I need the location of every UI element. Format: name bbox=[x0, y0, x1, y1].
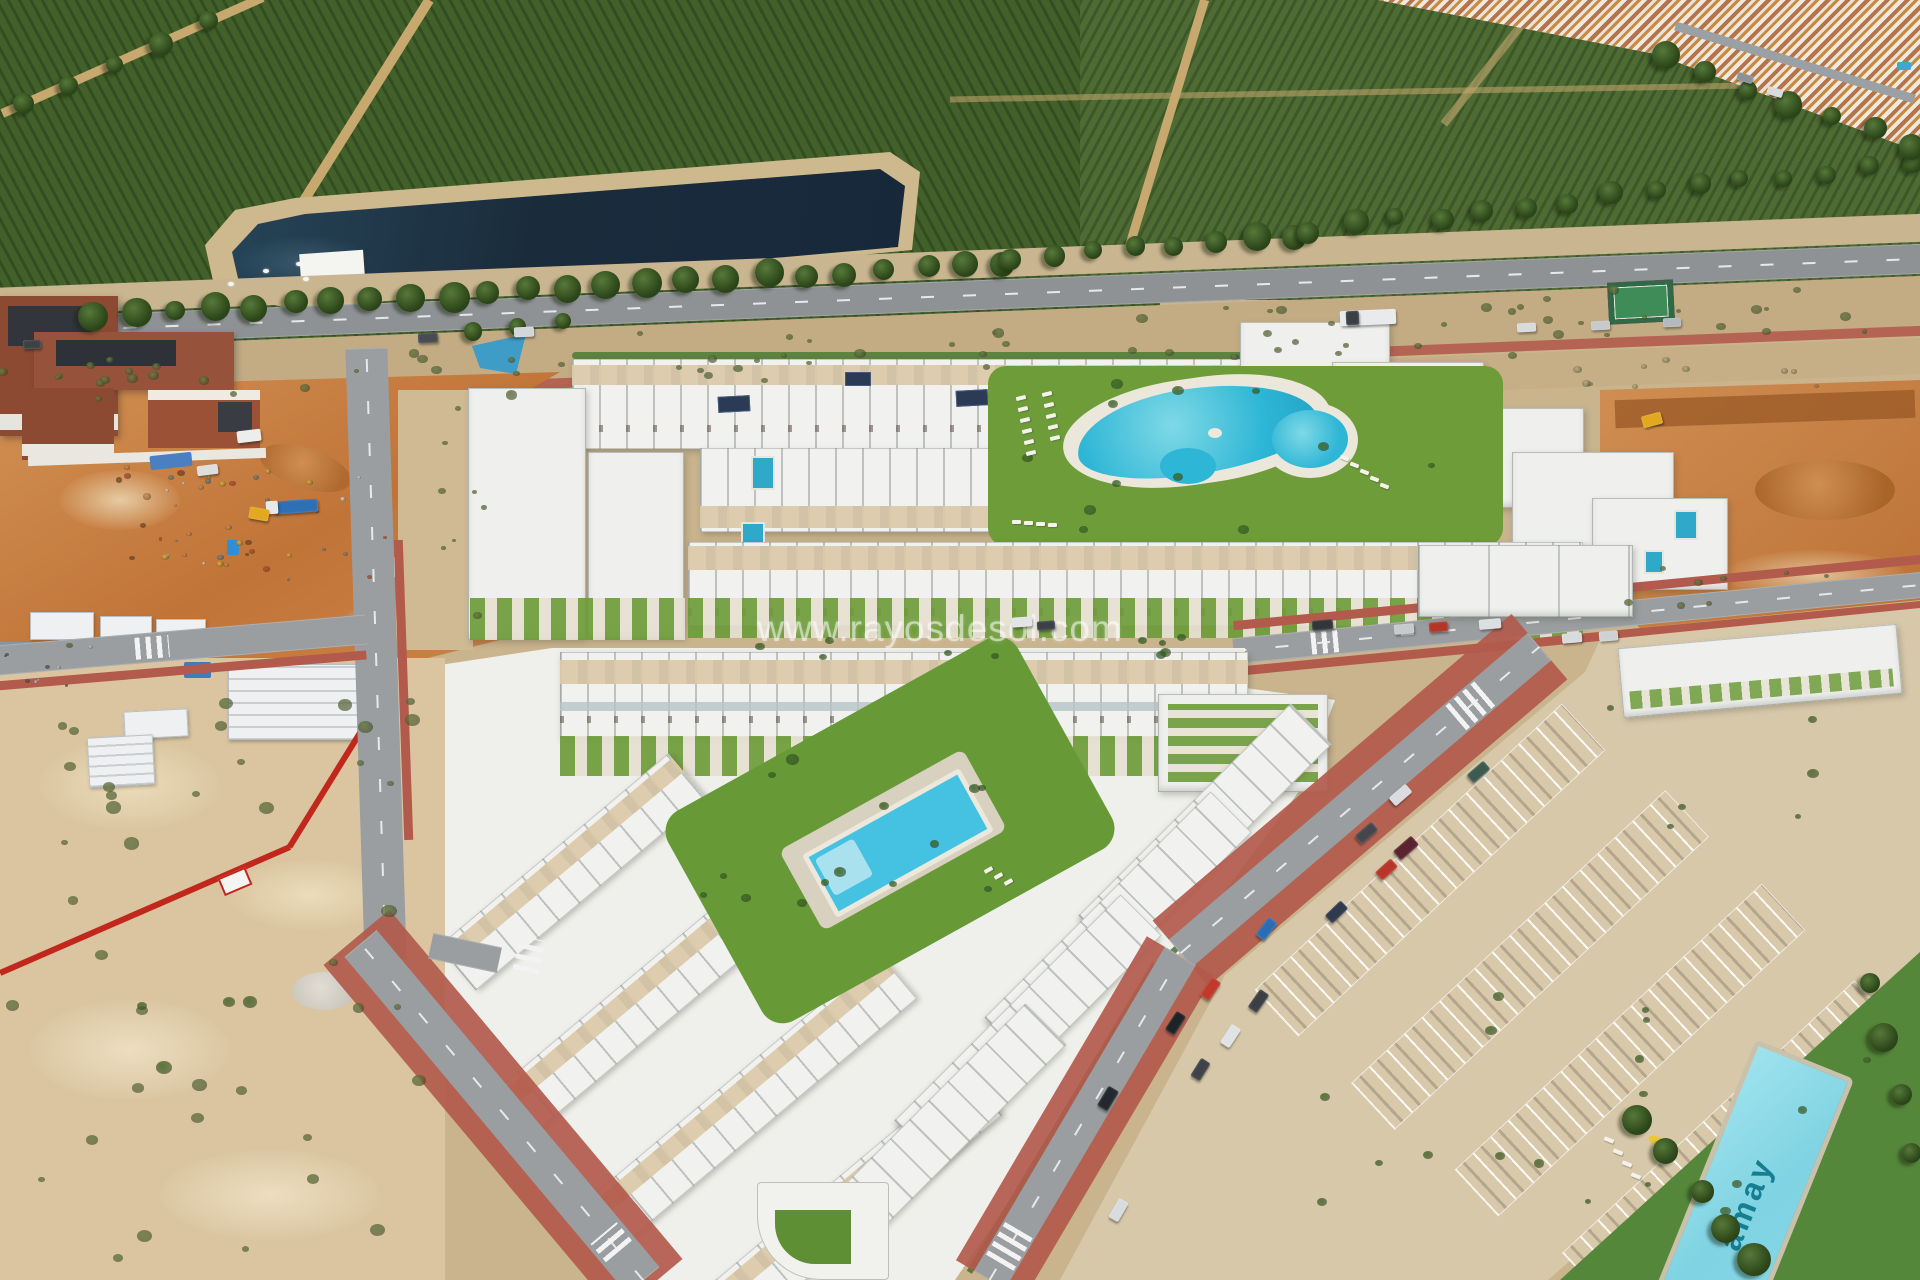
palm-tree bbox=[1652, 41, 1680, 69]
palm-tree bbox=[1558, 194, 1578, 214]
crosswalk bbox=[1310, 630, 1342, 655]
palm-tree bbox=[396, 284, 425, 313]
scrub-bush bbox=[132, 1083, 144, 1093]
scrub-bush bbox=[1642, 1007, 1650, 1013]
scrub-bush bbox=[409, 349, 420, 357]
scrub-bush bbox=[65, 684, 68, 687]
scrub-bush bbox=[1173, 473, 1183, 481]
scrub-bush bbox=[1553, 330, 1564, 339]
scrub-bush bbox=[558, 362, 565, 367]
scrub-bush bbox=[124, 473, 131, 479]
scrub-bush bbox=[106, 801, 121, 813]
scrub-bush bbox=[1428, 463, 1435, 469]
scrub-bush bbox=[781, 353, 788, 358]
scrub-bush bbox=[124, 837, 140, 850]
palm-tree bbox=[952, 251, 978, 277]
scrub-bush bbox=[300, 384, 310, 392]
palm-tree bbox=[149, 32, 173, 56]
palm-tree bbox=[317, 287, 343, 313]
car bbox=[1516, 322, 1535, 332]
palm-tree bbox=[1599, 181, 1622, 204]
sun-lounger bbox=[1036, 522, 1045, 526]
scrub-bush bbox=[161, 554, 168, 560]
palm-tree bbox=[357, 287, 382, 312]
scrub-bush bbox=[854, 349, 866, 359]
palm-tree bbox=[1471, 200, 1493, 222]
palm-tree bbox=[554, 275, 581, 302]
palm-tree bbox=[13, 93, 34, 114]
palm-tree bbox=[1344, 209, 1369, 234]
palm-tree bbox=[1387, 208, 1404, 225]
scrub-bush bbox=[242, 1246, 250, 1252]
scrub-bush bbox=[761, 378, 768, 383]
scrub-bush bbox=[338, 699, 353, 711]
scrub-bush bbox=[637, 331, 643, 336]
scrub-bush bbox=[700, 892, 707, 898]
scrub-bush bbox=[1795, 814, 1801, 819]
scrub-bush bbox=[786, 754, 799, 765]
van bbox=[1012, 616, 1033, 627]
private-pool bbox=[1676, 512, 1696, 538]
sand-strip bbox=[398, 390, 473, 650]
scrub-bush bbox=[1791, 369, 1797, 374]
scrub-bush bbox=[1781, 368, 1788, 374]
scrub-bush bbox=[192, 1079, 206, 1091]
scrub-bush bbox=[191, 1113, 204, 1123]
scrub-bush bbox=[329, 959, 338, 966]
palm-tree bbox=[516, 276, 540, 300]
scrub-bush bbox=[1587, 382, 1593, 386]
scrub-bush bbox=[156, 1061, 172, 1074]
car bbox=[1663, 317, 1681, 327]
scrub-bush bbox=[387, 781, 394, 786]
swan bbox=[228, 282, 234, 286]
scrub-bush bbox=[1585, 1199, 1592, 1204]
scrub-bush bbox=[768, 772, 776, 778]
palm-tree bbox=[755, 258, 784, 287]
scrub-bush bbox=[506, 390, 518, 400]
scrub-bush bbox=[95, 950, 108, 961]
scrub-bush bbox=[223, 997, 235, 1006]
scrub-bush bbox=[1676, 309, 1681, 313]
scrub-bush bbox=[116, 477, 123, 482]
palm-tree bbox=[1731, 170, 1748, 187]
car bbox=[514, 327, 534, 338]
villas-row bbox=[1418, 545, 1633, 617]
scrub-bush bbox=[1084, 505, 1096, 515]
corner-garden bbox=[775, 1210, 851, 1264]
palm-tree bbox=[1432, 209, 1453, 230]
scrub-bush bbox=[1578, 321, 1584, 326]
car bbox=[418, 333, 438, 344]
scrub-bush bbox=[1643, 1017, 1650, 1023]
scrub-bush bbox=[61, 840, 68, 845]
scrub-bush bbox=[1481, 303, 1492, 312]
dirt-mound bbox=[1755, 460, 1895, 520]
solar-panel bbox=[718, 395, 751, 413]
palm-tree bbox=[632, 268, 662, 298]
scrub-bush bbox=[177, 470, 185, 476]
scrub-bush bbox=[417, 355, 428, 363]
scrub-bush bbox=[286, 553, 292, 558]
scrub-bush bbox=[1508, 308, 1516, 315]
scrub-bush bbox=[198, 485, 204, 490]
scrub-bush bbox=[1635, 1055, 1644, 1062]
scrub-bush bbox=[704, 372, 713, 379]
scrub-bush bbox=[6, 1000, 19, 1011]
scrub-bush bbox=[125, 368, 133, 375]
scrub-bush bbox=[508, 357, 516, 363]
palm-tree bbox=[591, 271, 619, 299]
scrub-bush bbox=[1720, 576, 1727, 581]
palm-tree bbox=[201, 292, 230, 321]
dark-roof bbox=[56, 340, 176, 366]
site-cabin bbox=[30, 612, 94, 640]
scrub-bush bbox=[834, 867, 846, 877]
scrub-bush bbox=[58, 722, 67, 730]
palm-tree bbox=[1899, 134, 1920, 160]
scrub-bush bbox=[236, 1086, 247, 1095]
scrub-bush bbox=[103, 782, 115, 792]
palm-tree bbox=[1869, 1023, 1898, 1052]
scrub-bush bbox=[249, 549, 255, 554]
scrub-bush bbox=[1793, 287, 1801, 294]
swan bbox=[263, 269, 269, 273]
palm-tree bbox=[1084, 241, 1102, 259]
palm-tree bbox=[795, 265, 818, 288]
scrub-bush bbox=[215, 721, 227, 731]
swan bbox=[296, 262, 302, 266]
roof-terraces bbox=[560, 660, 1248, 684]
scrub-bush bbox=[1678, 804, 1686, 810]
palm-tree bbox=[464, 322, 483, 341]
solar-panel bbox=[845, 372, 871, 386]
sun-lounger bbox=[1024, 521, 1033, 525]
crosswalk bbox=[134, 635, 170, 660]
car bbox=[1598, 630, 1618, 642]
scrub-bush bbox=[1677, 602, 1685, 609]
scrub-bush bbox=[229, 481, 236, 486]
car bbox=[1428, 621, 1448, 633]
scrub-bush bbox=[205, 478, 212, 484]
scrub-bush bbox=[1604, 333, 1610, 338]
palm-tree bbox=[1653, 1138, 1678, 1163]
scrub-bush bbox=[431, 366, 442, 375]
palm-tree bbox=[672, 266, 699, 293]
palm-tree bbox=[1860, 973, 1880, 993]
scrub-bush bbox=[1276, 306, 1286, 314]
palm-tree bbox=[1000, 249, 1020, 269]
hedge bbox=[572, 352, 1312, 359]
scrub-bush bbox=[481, 505, 487, 510]
scrub-bush bbox=[979, 351, 987, 357]
scrub-bush bbox=[733, 365, 742, 372]
scrub-bush bbox=[1639, 1091, 1647, 1098]
scrub-bush bbox=[1375, 1160, 1383, 1166]
scrub-bush bbox=[1423, 1151, 1433, 1159]
scrub-bush bbox=[1274, 347, 1282, 353]
palm-tree bbox=[873, 259, 894, 280]
scrub-bush bbox=[381, 905, 397, 918]
garden-strip bbox=[470, 598, 685, 640]
scrub-bush bbox=[1784, 571, 1789, 575]
palm-tree bbox=[59, 76, 78, 95]
dark-roof bbox=[218, 402, 252, 432]
tennis-court-surface bbox=[1613, 285, 1669, 320]
palm-tree bbox=[78, 302, 108, 332]
palm-tree bbox=[1711, 1214, 1740, 1243]
truck-cab bbox=[1345, 311, 1359, 326]
lagoon-pool-lobe bbox=[1272, 410, 1348, 468]
palm-tree bbox=[1902, 1143, 1920, 1162]
scrub-bush bbox=[1267, 309, 1273, 314]
scrub-bush bbox=[192, 791, 200, 797]
scrub-bush bbox=[825, 637, 833, 644]
scrub-bush bbox=[148, 371, 159, 380]
palm-tree bbox=[1622, 1105, 1652, 1135]
scrub-bush bbox=[949, 342, 955, 347]
scrub-bush bbox=[1517, 304, 1524, 310]
palm-tree bbox=[165, 301, 185, 321]
scrub-bush bbox=[441, 546, 445, 550]
palm-tree bbox=[1243, 222, 1271, 250]
scrub-bush bbox=[182, 553, 187, 557]
car bbox=[1311, 619, 1333, 631]
palm-tree bbox=[1739, 81, 1758, 100]
scrub-bush bbox=[159, 537, 163, 540]
scrub-bush bbox=[4, 655, 7, 658]
pale-sand bbox=[160, 1150, 380, 1240]
palm-tree bbox=[1691, 1180, 1713, 1202]
car bbox=[1037, 620, 1056, 630]
palm-tree bbox=[1864, 117, 1887, 140]
scrub-bush bbox=[1112, 480, 1121, 487]
scrub-bush bbox=[1608, 285, 1620, 295]
scrub-bush bbox=[930, 840, 939, 847]
car bbox=[1590, 320, 1609, 330]
scrub-bush bbox=[1642, 315, 1647, 319]
scrub-bush bbox=[1079, 526, 1087, 533]
palm-tree bbox=[122, 298, 152, 328]
watermark: www.rayosdesol.com bbox=[700, 608, 1180, 650]
car bbox=[23, 339, 41, 349]
scrub-bush bbox=[237, 759, 244, 765]
scrub-bush bbox=[969, 784, 980, 793]
scrub-bush bbox=[1493, 992, 1504, 1001]
crosswalk bbox=[591, 1222, 632, 1262]
scrub-bush bbox=[1111, 379, 1123, 388]
scrub-bush bbox=[1751, 305, 1762, 314]
scrub-bush bbox=[230, 391, 237, 397]
sun-lounger bbox=[1048, 523, 1057, 527]
scrub-bush bbox=[1318, 442, 1329, 451]
scrub-bush bbox=[1177, 634, 1186, 641]
scrub-bush bbox=[199, 376, 209, 384]
scrub-bush bbox=[1632, 384, 1638, 389]
scrub-bush bbox=[1808, 716, 1817, 723]
scrub-bush bbox=[708, 355, 718, 363]
scrub-bush bbox=[140, 523, 146, 528]
palm-tree bbox=[1737, 1243, 1770, 1276]
scrub-bush bbox=[720, 873, 728, 879]
scrub-bush bbox=[186, 532, 191, 536]
scrub-bush bbox=[1762, 328, 1771, 335]
scrub-bush bbox=[224, 563, 229, 567]
scrub-bush bbox=[1230, 354, 1238, 361]
scrub-bush bbox=[353, 1003, 365, 1012]
scrub-bush bbox=[236, 540, 243, 546]
scrub-bush bbox=[66, 643, 73, 648]
white-wall bbox=[148, 390, 260, 400]
lagoon-pool-lobe bbox=[1160, 448, 1216, 484]
scrub-bush bbox=[253, 475, 259, 480]
car bbox=[1562, 632, 1583, 644]
scrub-bush bbox=[56, 666, 60, 670]
road-centerline bbox=[365, 348, 386, 960]
scrub-bush bbox=[174, 504, 178, 507]
palm-tree bbox=[476, 281, 498, 303]
scrub-bush bbox=[306, 480, 313, 486]
scrub-bush bbox=[1720, 1207, 1730, 1215]
scrub-bush bbox=[243, 996, 258, 1008]
scrub-bush bbox=[303, 1134, 312, 1141]
palm-tree bbox=[1126, 236, 1145, 255]
private-pool bbox=[753, 458, 773, 488]
scrub-bush bbox=[983, 364, 991, 370]
van bbox=[1479, 618, 1502, 630]
pool-island bbox=[1208, 428, 1222, 438]
scrub-bush bbox=[1543, 316, 1553, 324]
scrub-bush bbox=[143, 493, 151, 499]
scrub-bush bbox=[1807, 769, 1818, 778]
scrub-bush bbox=[357, 760, 365, 766]
scrub-bush bbox=[1732, 1180, 1742, 1188]
palm-tree bbox=[1297, 222, 1319, 244]
scrub-bush bbox=[405, 714, 420, 726]
palm-tree bbox=[555, 313, 571, 329]
scrub-bush bbox=[755, 643, 765, 651]
car bbox=[1394, 623, 1415, 635]
scrub-bush bbox=[741, 894, 751, 902]
scrub-bush bbox=[1863, 1057, 1871, 1063]
scrub-bush bbox=[1706, 601, 1712, 606]
scrub-bush bbox=[217, 555, 224, 560]
scrub-bush bbox=[1798, 1106, 1808, 1114]
scrub-bush bbox=[1252, 388, 1259, 394]
scrub-bush bbox=[1343, 343, 1349, 348]
scrub-bush bbox=[322, 548, 325, 551]
palm-tree bbox=[1691, 173, 1712, 194]
scrub-bush bbox=[797, 899, 807, 907]
scrub-bush bbox=[34, 680, 39, 684]
scrub-bush bbox=[86, 1135, 98, 1145]
swan bbox=[303, 277, 309, 281]
scrub-bush bbox=[1441, 322, 1447, 327]
scrub-bush bbox=[88, 645, 93, 649]
scrub-bush bbox=[1136, 314, 1147, 323]
scrub-bush bbox=[1862, 329, 1868, 334]
scrub-bush bbox=[1238, 525, 1249, 534]
dump-trailer bbox=[274, 498, 319, 514]
village-pool bbox=[1897, 62, 1911, 70]
scrub-bush bbox=[473, 612, 481, 619]
scrub-bush bbox=[513, 371, 520, 376]
scrub-bush bbox=[1335, 351, 1342, 357]
solar-panel bbox=[956, 389, 989, 407]
scrub-bush bbox=[993, 328, 1005, 338]
palm-tree bbox=[1648, 181, 1666, 199]
scrub-bush bbox=[1414, 343, 1422, 349]
scrub-bush bbox=[1543, 296, 1551, 302]
palm-tree bbox=[1891, 1084, 1912, 1105]
scrub-bush bbox=[124, 465, 129, 469]
portable-building bbox=[87, 734, 156, 787]
scrub-bush bbox=[991, 653, 999, 659]
complex1-mid-block bbox=[700, 448, 1005, 532]
aerial-photo: amay www.rayosdesol.com bbox=[0, 0, 1920, 1280]
sun-lounger bbox=[1012, 520, 1021, 524]
scrub-bush bbox=[754, 358, 760, 363]
palm-tree bbox=[284, 290, 307, 313]
scrub-bush bbox=[1645, 1182, 1651, 1187]
scrub-bush bbox=[472, 490, 477, 494]
palm-tree bbox=[106, 56, 123, 73]
scrub-bush bbox=[1764, 307, 1769, 311]
scrub-bush bbox=[1667, 824, 1674, 830]
